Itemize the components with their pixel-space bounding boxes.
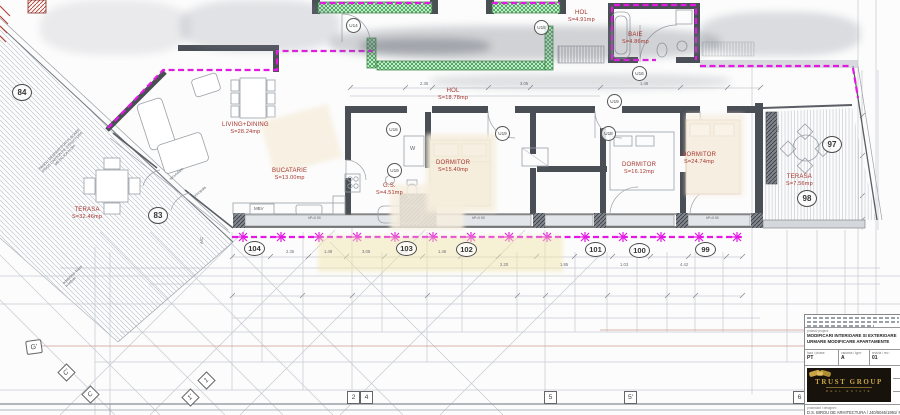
axis-2: 2: [347, 391, 360, 404]
designer-value: D.S. BIROU DE ARHITECTURA / J40/5046/199…: [805, 410, 900, 415]
project-name-line1: MODIFICARI INTERIOARE SI EXTERIOARE: [805, 333, 900, 339]
room-label-living: LIVING+DININGS=28.24mp: [222, 122, 269, 136]
marker-83: 83: [148, 207, 168, 224]
room-label-terasa-right: TERASAS=7.56mp: [786, 174, 813, 188]
dim-value: 3.05: [520, 81, 528, 86]
door-tag-u16-b: U16: [386, 122, 401, 137]
marker-97: 97: [822, 136, 842, 153]
room-label-gs: G.S.S=4.51mp: [376, 183, 403, 197]
marker-103: 103: [396, 241, 417, 256]
ac-label: A/C: [776, 125, 781, 132]
mbv-label: MBV: [254, 206, 264, 211]
dim-value: 1.46: [640, 81, 648, 86]
marker-100: 100: [629, 243, 650, 258]
field-type: varianta / type: A: [839, 350, 870, 365]
marker-99: 99: [695, 242, 716, 257]
dim-value: 1.03: [620, 262, 628, 267]
room-label-hol-mare: HOLS=18.78mp: [438, 88, 468, 102]
dim-value: 2.20: [500, 262, 508, 267]
room-label-dormitor-1: DORMITORS=15.40mp: [436, 160, 470, 174]
scan-smudge: [40, 0, 190, 55]
dim-value: 1.85: [560, 262, 568, 267]
logo-subtitle: REAL ESTATE: [826, 387, 872, 393]
logo-side-cells: [893, 366, 900, 404]
ac-label-2: A/C: [200, 237, 205, 244]
marker-104: 104: [244, 241, 265, 256]
watermark-stain: [318, 236, 563, 272]
scan-smudge: [430, 74, 730, 89]
room-label-terasa-left: TERASAS=32.46mp: [72, 207, 102, 221]
dim-value: 1.46: [438, 249, 446, 254]
room-label-hol-mic: HOLS=4.91mp: [568, 10, 595, 24]
room-label-bucatarie: BUCATARIES=13.00mp: [272, 168, 307, 182]
door-tag-u15: U15: [534, 20, 549, 35]
field-phase: faza / phase: PT: [805, 350, 839, 365]
axis-4: 4: [360, 391, 373, 404]
door-tag-u19-c: U19: [495, 126, 510, 141]
title-block-logo-row: TRUST GROUP REAL ESTATE: [805, 366, 900, 405]
trust-group-logo: TRUST GROUP REAL ESTATE: [807, 368, 891, 402]
door-tag-u19: U19: [607, 94, 622, 109]
logo-name: TRUST GROUP: [815, 378, 883, 386]
title-block-designer: proiectant / designer: D.S. BIROU DE ARH…: [805, 405, 900, 415]
door-tag-u18: U18: [601, 126, 616, 141]
window-height-label-2: hP=0.90: [472, 217, 485, 221]
scan-smudge: [180, 0, 340, 52]
door-tag-u16: U16: [632, 66, 647, 81]
project-name-line2: URMARE MODIFICARE APARTAMENTE: [805, 339, 900, 345]
title-block-fields: faza / phase: PT varianta / type: A revi…: [805, 350, 900, 366]
title-block-project: proiect/ project: MODIFICARI INTERIOARE …: [805, 328, 900, 350]
dim-value: 3.05: [362, 249, 370, 254]
marker-102: 102: [456, 242, 477, 257]
title-block: proiect/ project: MODIFICARI INTERIOARE …: [804, 314, 900, 415]
dim-value: 1.48: [324, 249, 332, 254]
field-rev: revizia / rev.: 01: [870, 350, 900, 365]
sheet-border: [0, 404, 900, 415]
axis-5: 5: [544, 391, 557, 404]
axis-G: G': [25, 339, 43, 355]
axis-5b: 5': [624, 391, 637, 404]
floor-plan-sheet: TERASAS=32.46mp LIVING+DININGS=28.24mp B…: [0, 0, 900, 415]
dim-value: 4.42: [680, 262, 688, 267]
marker-101: 101: [585, 242, 606, 257]
door-tag-u19-b: U19: [387, 163, 402, 178]
handshake-icon: [807, 368, 833, 379]
dim-value: 2.35: [420, 81, 428, 86]
room-label-dormitor-3: DORMITORS=24.74mp: [682, 152, 716, 166]
dim-value: 2.35: [286, 249, 294, 254]
marker-84: 84: [12, 84, 32, 101]
title-block-disclaimer: [805, 315, 900, 328]
scan-smudge: [700, 12, 860, 56]
marker-98: 98: [797, 190, 817, 207]
door-tag-u14: U14: [346, 18, 361, 33]
window-height-label-1: hP=0.90: [308, 217, 321, 221]
room-label-baie: BAIES=4.86mp: [622, 32, 649, 46]
window-height-label-3: hP=0.90: [706, 217, 719, 221]
wardrobe-label: W: [410, 146, 415, 152]
scan-smudge: [360, 38, 490, 54]
room-label-dormitor-2: DORMITORS=16.12mp: [622, 162, 656, 176]
